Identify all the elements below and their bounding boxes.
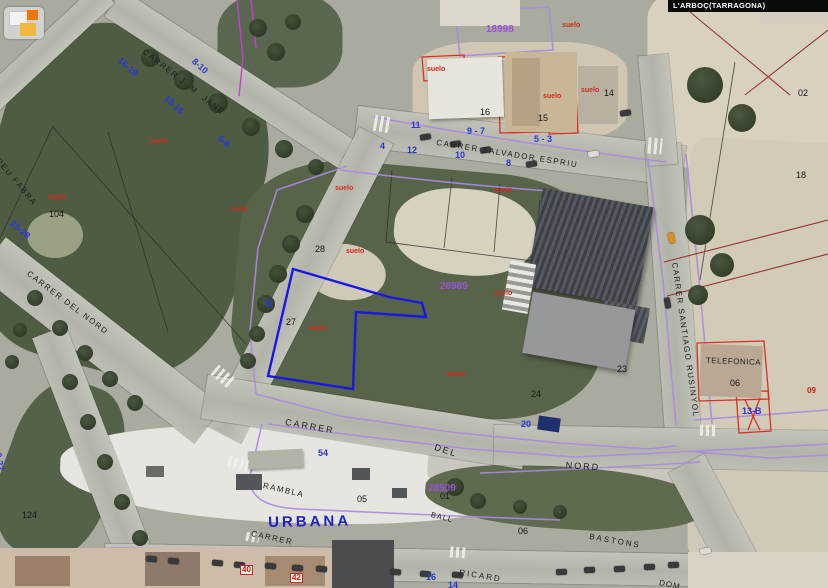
crosswalk <box>647 137 662 154</box>
house-number-label: 12 <box>407 146 417 155</box>
parcel-number-label: 27 <box>286 318 296 327</box>
house-number-label: 16 <box>426 573 436 582</box>
parcel-number-label: 23 <box>617 365 627 374</box>
tree <box>62 374 78 390</box>
tree <box>102 371 118 387</box>
crosswalk <box>373 115 392 134</box>
building-telefonica <box>699 344 763 398</box>
plaza-structure <box>392 488 407 498</box>
parked-car <box>390 569 401 576</box>
tree <box>269 265 287 283</box>
parked-car <box>212 560 223 567</box>
tree <box>296 205 314 223</box>
parcel-number-label: 06 <box>730 379 740 388</box>
suelo-label: suelo <box>494 187 512 194</box>
suelo-label: suelo <box>149 138 167 145</box>
tree <box>242 118 260 136</box>
parcel-number-label: 16 <box>480 108 490 117</box>
house-number-label: 30 <box>262 297 273 309</box>
tree <box>275 140 293 158</box>
plaza-structure <box>146 466 164 477</box>
parked-car <box>620 109 632 117</box>
house-number-label: 20 <box>521 420 531 429</box>
suelo-label: suelo <box>427 66 445 73</box>
tree <box>52 320 68 336</box>
suelo-label: suelo <box>494 290 512 297</box>
parked-car <box>265 563 276 570</box>
parcel-id-label: 18998 <box>486 25 514 35</box>
parcel-number-label: 05 <box>357 495 367 504</box>
parked-car <box>614 566 625 573</box>
tree <box>267 43 285 61</box>
house-number-label: 13-B <box>742 407 762 416</box>
tree <box>688 285 708 305</box>
tree <box>687 67 723 103</box>
parcel-number-label: 28 <box>315 245 325 254</box>
urbana-label: URBANA <box>268 514 351 530</box>
street-name-label: BASTONS <box>589 533 642 550</box>
parcel-id-label: 28989 <box>440 282 468 292</box>
parked-car <box>146 556 157 563</box>
building-dark-bottom <box>332 540 394 588</box>
plaza-structure <box>236 474 262 490</box>
tree <box>249 326 265 342</box>
tree <box>132 530 148 546</box>
suelo-label: suelo <box>447 371 465 378</box>
suelo-label: suelo <box>308 325 326 332</box>
house-number-label: 5 - 3 <box>534 135 552 144</box>
tree <box>685 215 715 245</box>
tree <box>285 14 301 30</box>
tree <box>127 395 143 411</box>
municipality-bar: L'ARBOÇ(TARRAGONA) <box>668 0 828 12</box>
parcel-number-label: 15 <box>538 114 548 123</box>
parked-car <box>668 562 679 569</box>
kiosk-blue-roof <box>537 416 561 433</box>
tree <box>5 355 19 369</box>
logo-amber-square <box>20 23 36 36</box>
parcel-number-label: 18 <box>796 171 806 180</box>
tree <box>27 290 43 306</box>
tree <box>728 104 756 132</box>
tree <box>308 159 324 175</box>
parcel-number-label: 02 <box>798 89 808 98</box>
suelo-label: suelo <box>581 87 599 94</box>
map-canvas[interactable]: CARRER SALVADOR ESPRIUCARRER SANTIAGO RU… <box>0 0 828 588</box>
parcel-id-label: 28509 <box>428 484 456 494</box>
red-number-label: 42 <box>290 573 303 583</box>
parcel-number-label: 06 <box>518 527 528 536</box>
building-unit <box>15 556 70 586</box>
house-number-label: 14 <box>448 581 458 588</box>
tree <box>240 353 256 369</box>
building-tan-wing <box>512 58 540 126</box>
house-number-label: 0-22 <box>0 452 5 471</box>
catastro-logo[interactable] <box>4 7 44 39</box>
road <box>494 425 828 471</box>
tree <box>470 493 486 509</box>
logo-orange-square <box>27 10 38 20</box>
tree <box>80 414 96 430</box>
suelo-label: suelo <box>48 194 66 201</box>
house-number-label: 9 - 7 <box>467 127 485 136</box>
suelo-label: suelo <box>335 185 353 192</box>
parcel-number-label: 24 <box>531 390 541 399</box>
building-top-edge <box>440 0 520 26</box>
red-number-label: 09 <box>806 387 817 395</box>
tree <box>553 505 567 519</box>
parked-car <box>316 566 327 573</box>
house-number-label: 54 <box>318 449 328 458</box>
tree <box>77 345 93 361</box>
house-number-label: 8 <box>506 159 511 168</box>
street-name-label: CARRER <box>250 530 294 547</box>
suelo-label: suelo <box>230 206 248 213</box>
plaza-pavilion <box>248 449 304 470</box>
house-number-label: 11 <box>411 121 421 130</box>
parked-car <box>556 569 567 576</box>
parcel-number-label: 104 <box>49 210 64 219</box>
tree <box>13 323 27 337</box>
parcel-number-label: 14 <box>604 89 614 98</box>
parcel-number-label: 124 <box>22 511 37 520</box>
crosswalk <box>700 425 717 437</box>
house-number-label: 4 <box>380 142 385 151</box>
tree <box>114 494 130 510</box>
plaza-structure <box>352 468 370 480</box>
suelo-label: suelo <box>562 22 580 29</box>
tree <box>710 253 734 277</box>
building-block-bottom-right <box>688 552 828 588</box>
tree <box>282 235 300 253</box>
suelo-label: suelo <box>543 93 561 100</box>
parked-car <box>292 565 303 572</box>
parked-car <box>644 564 655 571</box>
suelo-label: suelo <box>346 248 364 255</box>
crosswalk <box>450 546 467 558</box>
red-number-label: 40 <box>240 565 253 575</box>
parked-car <box>168 558 179 565</box>
tree <box>249 19 267 37</box>
parked-car <box>584 567 595 574</box>
tree <box>97 454 113 470</box>
tree <box>513 500 527 514</box>
house-number-label: 10 <box>455 151 465 160</box>
